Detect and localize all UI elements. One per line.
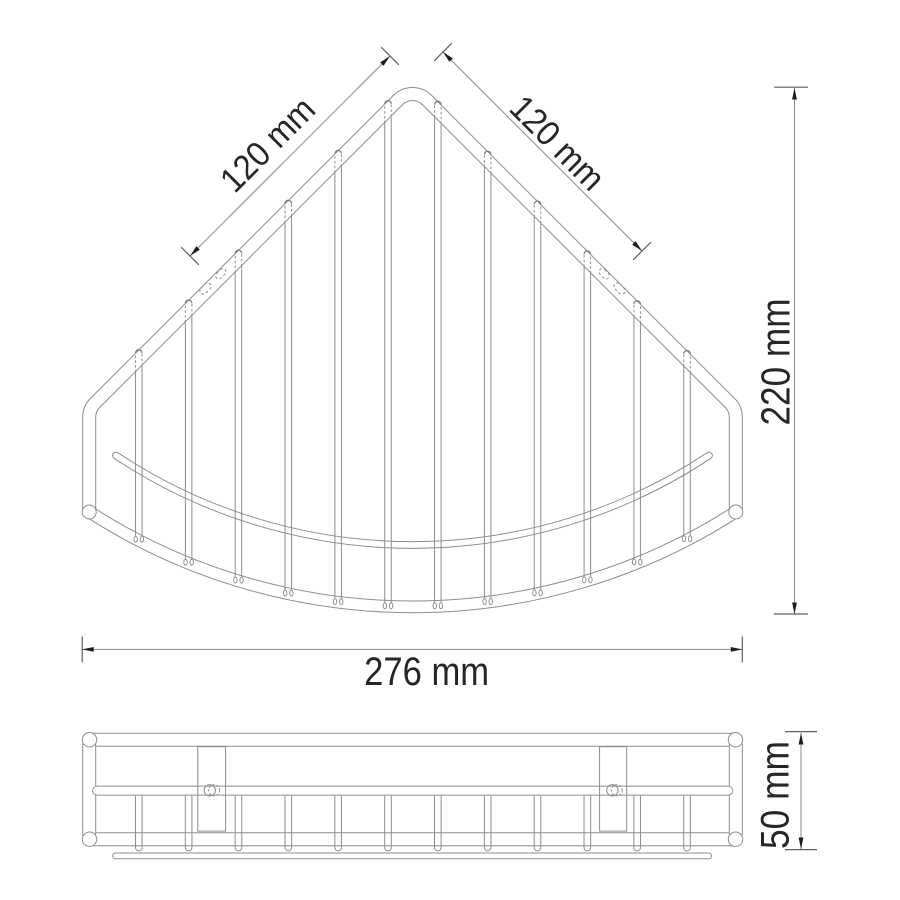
svg-text:50 mm: 50 mm xyxy=(754,741,798,849)
svg-text:220 mm: 220 mm xyxy=(753,299,799,426)
svg-text:276 mm: 276 mm xyxy=(364,650,489,694)
